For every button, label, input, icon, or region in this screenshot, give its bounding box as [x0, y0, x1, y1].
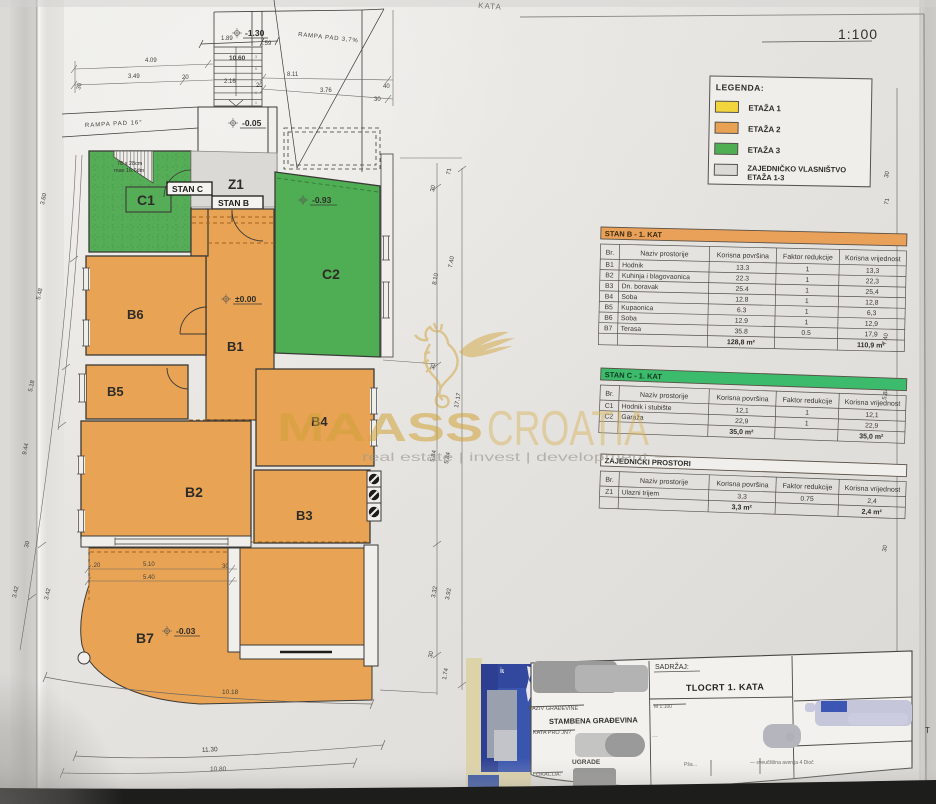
svg-text:Br.: Br. [605, 391, 614, 398]
svg-text:B4: B4 [605, 294, 614, 301]
svg-text:-1.30: -1.30 [245, 28, 265, 38]
svg-text:5.40: 5.40 [143, 575, 155, 581]
svg-text:±0.00: ±0.00 [235, 294, 256, 304]
svg-text:B2: B2 [605, 272, 614, 279]
svg-text:real estate | invest | develop: real estate | invest | development [362, 450, 649, 464]
svg-text:TLOCRT 1. KATA: TLOCRT 1. KATA [686, 682, 765, 693]
svg-text:MAASS: MAASS [277, 406, 483, 450]
svg-text:2,4: 2,4 [867, 498, 877, 505]
svg-text:B1: B1 [605, 262, 614, 269]
svg-text:3.49: 3.49 [128, 74, 140, 80]
svg-text:.59: .59 [263, 41, 272, 47]
svg-text:35.8: 35.8 [734, 328, 748, 335]
svg-text:8.11: 8.11 [287, 72, 299, 78]
svg-text:-0.05: -0.05 [242, 118, 262, 128]
svg-text:30: 30 [374, 97, 381, 103]
svg-text:9: 9 [255, 91, 257, 95]
svg-text:STAMBENA GRAĐEVINA: STAMBENA GRAĐEVINA [549, 715, 638, 726]
svg-text:0.5: 0.5 [801, 330, 811, 337]
svg-text:6,3: 6,3 [867, 310, 877, 317]
svg-text:3,3 m²: 3,3 m² [731, 504, 752, 512]
svg-text:T: T [925, 726, 930, 735]
svg-text:Soba: Soba [621, 315, 637, 322]
svg-text:Ulazni trijem: Ulazni trijem [622, 489, 660, 497]
svg-text:Korisna površina: Korisna površina [717, 252, 769, 260]
svg-text:13.3: 13.3 [736, 265, 750, 272]
svg-text:78 x 28cm: 78 x 28cm [117, 161, 143, 167]
svg-text:-0.93: -0.93 [312, 195, 332, 205]
svg-text:B6: B6 [127, 307, 144, 322]
svg-text:Dn. boravak: Dn. boravak [622, 283, 659, 291]
svg-text:10.18: 10.18 [222, 689, 239, 696]
svg-text:···: ··· [652, 734, 658, 740]
svg-text:22,9: 22,9 [735, 418, 749, 425]
svg-text:110,9 m²: 110,9 m² [857, 342, 885, 350]
svg-text:B2: B2 [185, 484, 203, 500]
svg-text:ETAŽA 1-3: ETAŽA 1-3 [747, 173, 784, 183]
svg-text:6.3: 6.3 [737, 307, 747, 314]
svg-text:ETAŽA 1: ETAŽA 1 [748, 104, 781, 114]
svg-text:1: 1 [805, 287, 809, 294]
svg-text:3.76: 3.76 [320, 88, 332, 94]
svg-text:Faktor redukcije: Faktor redukcije [783, 254, 833, 262]
svg-text:Z1: Z1 [228, 177, 244, 192]
svg-text:1:100: 1:100 [838, 26, 878, 42]
svg-text:SADRŽAJ:: SADRŽAJ: [655, 662, 689, 671]
svg-text:11.30: 11.30 [202, 746, 219, 754]
svg-text:Hodnik: Hodnik [622, 262, 644, 269]
svg-text:STAN B: STAN B [218, 198, 249, 208]
svg-text:CROATIA: CROATIA [487, 402, 649, 456]
svg-text:2.16: 2.16 [224, 79, 236, 85]
svg-text:B5: B5 [107, 384, 124, 399]
svg-text:B1: B1 [227, 339, 244, 354]
svg-text:Naziv prostorije: Naziv prostorije [640, 250, 688, 258]
svg-text:C1: C1 [137, 192, 155, 208]
svg-text:12,8: 12,8 [865, 299, 879, 306]
svg-text:1: 1 [805, 420, 809, 427]
svg-text:22.3: 22.3 [736, 275, 750, 282]
svg-text:4.09: 4.09 [145, 58, 157, 64]
svg-text:Soba: Soba [621, 294, 637, 301]
svg-text:ETAŽA 2: ETAŽA 2 [748, 125, 781, 135]
svg-text:22,9: 22,9 [865, 422, 879, 429]
svg-text:1: 1 [805, 277, 809, 284]
svg-text:12,9: 12,9 [865, 321, 879, 328]
svg-text:1: 1 [805, 410, 809, 417]
svg-text:Br.: Br. [605, 477, 614, 484]
svg-text:KATA: KATA [478, 1, 502, 12]
svg-text:1: 1 [806, 266, 810, 273]
svg-text:B3: B3 [296, 508, 313, 523]
svg-text:12.8: 12.8 [735, 296, 749, 303]
svg-text:22,3: 22,3 [866, 278, 880, 285]
svg-text:Z1: Z1 [605, 489, 613, 496]
svg-text:C2: C2 [322, 266, 340, 282]
svg-text:max 16.6dm: max 16.6dm [114, 168, 145, 174]
svg-text:1: 1 [805, 309, 809, 316]
svg-text:5: 5 [255, 67, 257, 71]
svg-text:2,4 m²: 2,4 m² [861, 509, 882, 517]
svg-text:13,3: 13,3 [866, 268, 880, 275]
svg-text:40: 40 [383, 84, 390, 90]
svg-text:iɩ: iɩ [500, 668, 504, 675]
svg-text:B7: B7 [604, 325, 613, 332]
svg-text:3: 3 [255, 55, 257, 59]
svg-text:10.60: 10.60 [229, 55, 246, 62]
svg-text:——: —— [655, 451, 677, 463]
svg-text:LEGENDA:: LEGENDA: [716, 82, 765, 93]
svg-text:1: 1 [804, 319, 808, 326]
svg-text:STAN C: STAN C [172, 184, 203, 194]
svg-text:17,9: 17,9 [864, 331, 878, 338]
svg-text:B6: B6 [604, 315, 613, 322]
svg-text:35,0 m²: 35,0 m² [859, 433, 884, 441]
svg-text:128,8 m²: 128,8 m² [727, 339, 756, 347]
svg-text:B7: B7 [136, 630, 154, 646]
svg-text:Br.: Br. [606, 250, 615, 257]
svg-text:Kupaonica: Kupaonica [621, 304, 653, 312]
svg-text:0.75: 0.75 [800, 496, 814, 503]
svg-text:.20: .20 [92, 563, 101, 569]
svg-text:12,1: 12,1 [735, 407, 749, 414]
svg-text:25,4: 25,4 [865, 289, 879, 296]
svg-text:1: 1 [255, 101, 257, 105]
svg-text:5.10: 5.10 [143, 562, 155, 568]
svg-text:ETAŽA 3: ETAŽA 3 [748, 146, 781, 156]
svg-text:35,0 m²: 35,0 m² [729, 429, 754, 437]
svg-text:12,1: 12,1 [865, 412, 879, 419]
svg-text:3,3: 3,3 [737, 493, 747, 500]
svg-text:B5: B5 [604, 304, 613, 311]
svg-text:B3: B3 [605, 283, 614, 290]
svg-text:30: 30 [222, 564, 229, 570]
svg-text:20: 20 [256, 83, 263, 89]
svg-text:-0.03: -0.03 [176, 626, 196, 636]
svg-text:12.9: 12.9 [735, 318, 749, 325]
svg-text:1: 1 [805, 298, 809, 305]
svg-text:1.89: 1.89 [221, 36, 233, 42]
svg-text:Terasa: Terasa [621, 326, 642, 333]
svg-text:STAN B - 1. KAT: STAN B - 1. KAT [605, 229, 663, 239]
svg-text:Korisna vrijednost: Korisna vrijednost [845, 255, 901, 263]
svg-text:20: 20 [182, 75, 189, 81]
svg-text:25.4: 25.4 [735, 286, 749, 293]
